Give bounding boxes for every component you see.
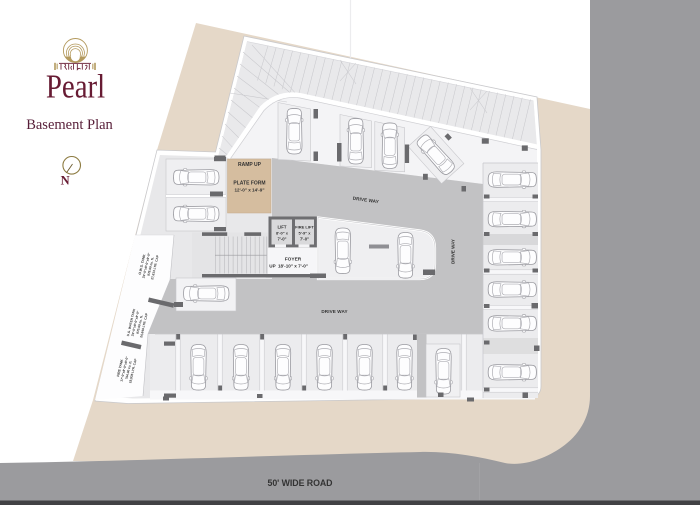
svg-text:8'-0" x: 8'-0" x: [276, 231, 289, 236]
svg-text:RAMP UP: RAMP UP: [238, 162, 262, 168]
svg-text:18'-10" x 7'-0": 18'-10" x 7'-0": [278, 264, 308, 269]
svg-text:Pearl: Pearl: [46, 67, 106, 105]
svg-text:PLATE FORM: PLATE FORM: [233, 181, 265, 187]
svg-text:FOYER: FOYER: [285, 257, 302, 263]
svg-text:5'-9" x: 5'-9" x: [299, 231, 312, 236]
svg-text:UP: UP: [269, 264, 275, 269]
svg-text:DRIVE WAY: DRIVE WAY: [451, 239, 456, 264]
svg-text:7'-0": 7'-0": [277, 237, 286, 242]
svg-text:Basement Plan: Basement Plan: [26, 117, 113, 133]
svg-text:50' WIDE ROAD: 50' WIDE ROAD: [268, 478, 333, 488]
svg-text:LIFT: LIFT: [277, 225, 286, 230]
svg-text:DRIVE WAY: DRIVE WAY: [321, 309, 347, 314]
svg-text:12'-0" x 14'-9": 12'-0" x 14'-9": [234, 188, 264, 193]
svg-text:N: N: [61, 174, 70, 188]
svg-text:FIRE LIFT: FIRE LIFT: [295, 225, 314, 230]
svg-text:7'-0": 7'-0": [300, 237, 309, 242]
